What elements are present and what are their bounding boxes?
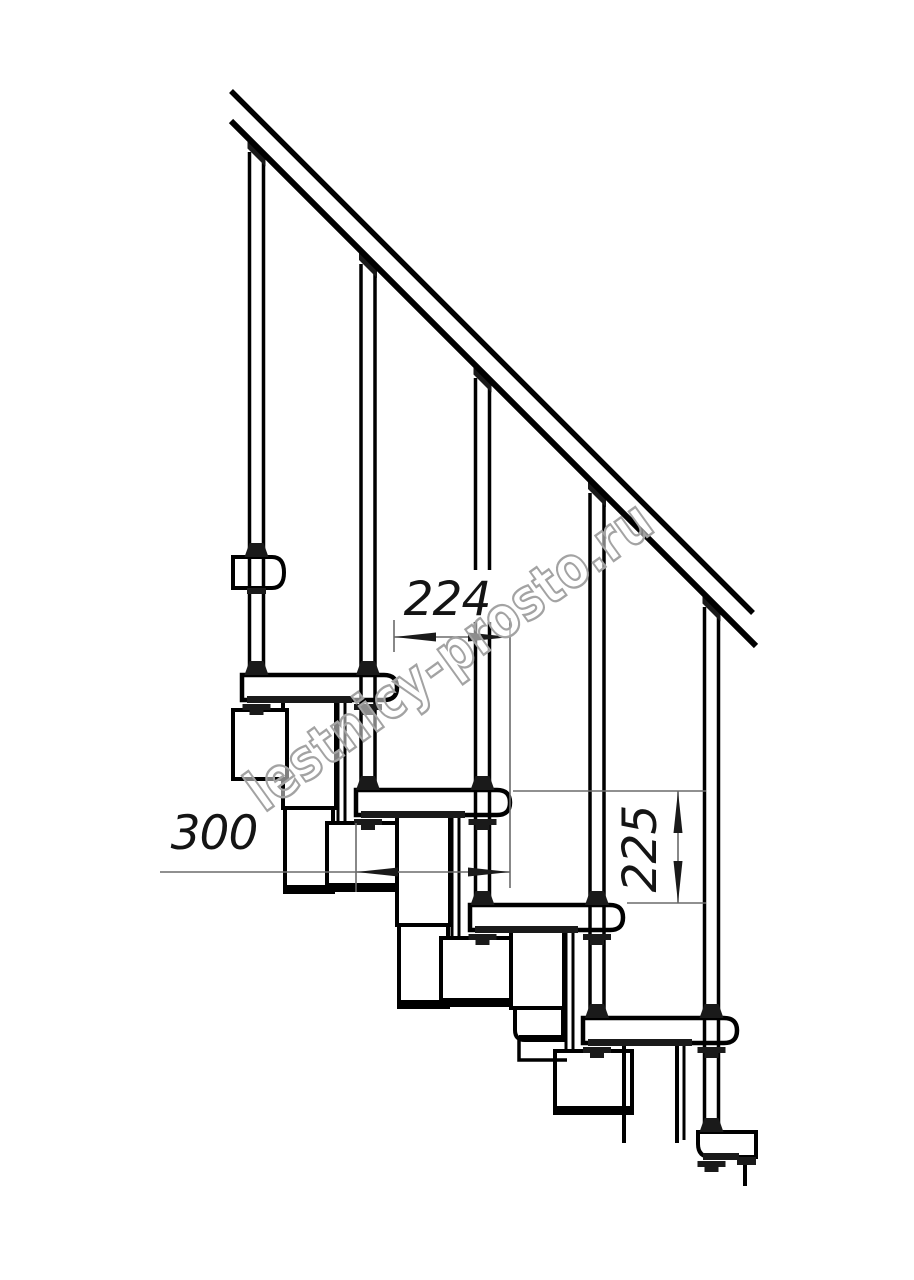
handrail <box>231 91 756 646</box>
module-box <box>327 823 403 890</box>
tread-underside <box>703 1153 739 1160</box>
watermark: lestnicy-prosto.ru <box>234 487 666 824</box>
module-chain <box>283 700 745 1186</box>
module-web <box>452 815 459 938</box>
tread-underside <box>475 926 578 933</box>
tread-nub <box>737 1157 756 1165</box>
staircase-technical-drawing: 224 300 225 lestnicy-prosto.ru <box>0 0 914 1280</box>
tread-nub <box>247 588 266 594</box>
module-base-edge <box>287 887 401 889</box>
tread-nub <box>469 819 497 830</box>
watermark-text: lestnicy-prosto.ru <box>234 487 666 824</box>
tread-underside <box>361 811 465 818</box>
baluster <box>250 152 264 675</box>
tread-bracket <box>233 557 284 588</box>
dimension-label-300: 300 <box>171 806 258 861</box>
tread-nub <box>698 1047 726 1058</box>
arrow-up-icon <box>674 791 683 833</box>
tread-nub <box>583 934 611 945</box>
module-web <box>566 930 573 1051</box>
module-box <box>511 930 564 1008</box>
module-box <box>397 815 450 925</box>
tread-underside <box>588 1039 692 1046</box>
module-base-edge <box>401 1002 515 1004</box>
dimension-label-225: 225 <box>613 806 668 893</box>
tread-nub <box>698 1161 726 1172</box>
handrail-top-line <box>231 91 753 613</box>
handrail-bottom-line <box>231 121 756 646</box>
drawing-canvas: 224 300 225 lestnicy-prosto.ru <box>0 0 914 1280</box>
arrow-down-icon <box>674 861 683 903</box>
module-box <box>441 938 517 1005</box>
